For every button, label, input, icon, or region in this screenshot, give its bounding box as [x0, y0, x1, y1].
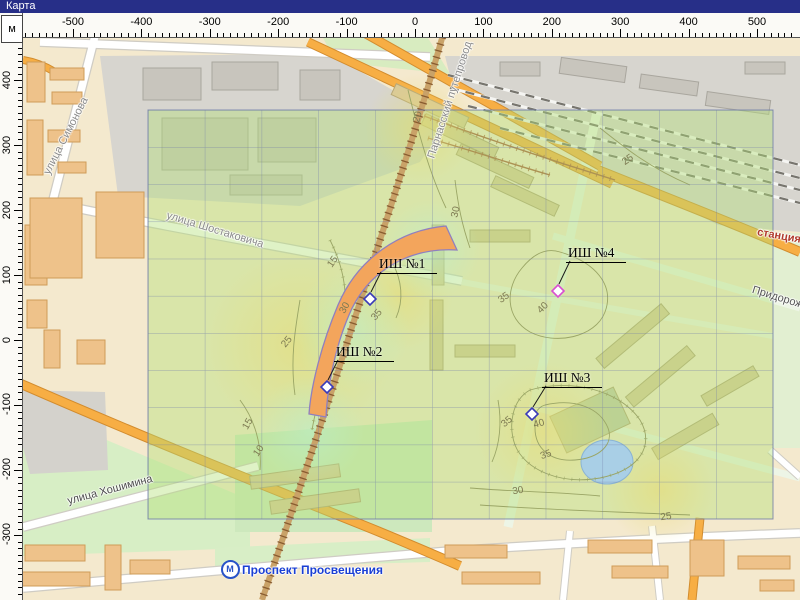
- ruler-label: 0: [1, 330, 15, 350]
- ruler-tick: [559, 33, 560, 37]
- ruler-tick: [18, 295, 22, 296]
- ruler-label: 500: [737, 16, 777, 28]
- ruler-tick: [18, 509, 22, 510]
- top-ruler: -500-400-300-200-1000100200300400500: [0, 13, 800, 38]
- ruler-tick: [429, 33, 430, 37]
- ruler-tick: [210, 29, 211, 37]
- ruler-tick: [654, 33, 655, 37]
- ruler-tick: [18, 132, 22, 133]
- survey-grid: [148, 110, 773, 519]
- ruler-tick: [18, 529, 22, 530]
- ruler-tick: [791, 33, 792, 37]
- ruler-tick: [278, 29, 279, 37]
- ruler-tick: [18, 54, 22, 55]
- ruler-tick: [394, 33, 395, 37]
- contour-value-label: 30: [512, 485, 525, 498]
- ruler-tick: [18, 178, 22, 179]
- ruler-label: 100: [463, 16, 503, 28]
- ruler-tick: [18, 561, 22, 562]
- ruler-tick: [483, 29, 484, 37]
- ruler-tick: [18, 555, 22, 556]
- ruler-tick: [223, 33, 224, 37]
- ruler-tick: [18, 197, 22, 198]
- ruler-tick: [155, 33, 156, 37]
- ruler-tick: [18, 574, 22, 575]
- ruler-tick: [14, 470, 22, 471]
- ruler-label: 300: [600, 16, 640, 28]
- ruler-tick: [347, 29, 348, 37]
- ruler-tick: [401, 33, 402, 37]
- ruler-tick: [18, 93, 22, 94]
- map-artwork: [23, 38, 800, 600]
- ruler-tick: [18, 288, 22, 289]
- ruler-tick: [299, 33, 300, 37]
- ruler-tick: [18, 139, 22, 140]
- ruler-tick: [408, 33, 409, 37]
- ruler-tick: [87, 33, 88, 37]
- metro-station-name: Проспект Просвещения: [242, 563, 383, 577]
- ruler-tick: [18, 431, 22, 432]
- ruler-tick: [572, 33, 573, 37]
- ruler-tick: [52, 33, 53, 37]
- ruler-tick: [18, 301, 22, 302]
- ruler-tick: [18, 236, 22, 237]
- ruler-tick: [18, 165, 22, 166]
- ruler-tick: [18, 457, 22, 458]
- ruler-tick: [771, 33, 772, 37]
- ruler-tick: [613, 33, 614, 37]
- ruler-tick: [764, 33, 765, 37]
- ruler-label: 200: [532, 16, 572, 28]
- ruler-tick: [107, 33, 108, 37]
- ruler-tick: [504, 33, 505, 37]
- ruler-tick: [32, 33, 33, 37]
- contour-value-label: 25: [660, 511, 673, 523]
- ruler-tick: [18, 581, 22, 582]
- ruler-tick: [436, 33, 437, 37]
- ruler-tick: [607, 33, 608, 37]
- ruler-label: 200: [1, 200, 15, 220]
- ruler-tick: [14, 405, 22, 406]
- ruler-tick: [415, 29, 416, 37]
- ruler-tick: [18, 425, 22, 426]
- ruler-tick: [18, 67, 22, 68]
- ruler-tick: [141, 29, 142, 37]
- ruler-tick: [18, 119, 22, 120]
- ruler-tick: [18, 249, 22, 250]
- ruler-tick: [353, 33, 354, 37]
- ruler-tick: [230, 33, 231, 37]
- ruler-tick: [340, 33, 341, 37]
- ruler-label: -100: [1, 395, 15, 415]
- ruler-tick: [641, 33, 642, 37]
- ruler-tick: [203, 33, 204, 37]
- ruler-tick: [285, 33, 286, 37]
- ruler-tick: [18, 269, 22, 270]
- ruler-tick: [538, 33, 539, 37]
- ruler-tick: [18, 386, 22, 387]
- ruler-tick: [18, 483, 22, 484]
- window-titlebar: Карта: [0, 0, 800, 13]
- ruler-tick: [18, 438, 22, 439]
- ruler-tick: [18, 204, 22, 205]
- ruler-tick: [18, 152, 22, 153]
- ruler-label: 0: [395, 16, 435, 28]
- ruler-tick: [709, 33, 710, 37]
- ruler-tick: [750, 33, 751, 37]
- ruler-tick: [14, 80, 22, 81]
- ruler-tick: [695, 33, 696, 37]
- ruler-tick: [18, 171, 22, 172]
- ruler-tick: [675, 33, 676, 37]
- ruler-tick: [627, 33, 628, 37]
- ruler-tick: [565, 33, 566, 37]
- ruler-tick: [18, 158, 22, 159]
- ruler-tick: [18, 308, 22, 309]
- ruler-tick: [94, 33, 95, 37]
- ruler-tick: [14, 535, 22, 536]
- ruler-tick: [449, 33, 450, 37]
- ruler-tick: [251, 33, 252, 37]
- ruler-tick: [18, 126, 22, 127]
- ruler-tick: [552, 29, 553, 37]
- ruler-tick: [18, 464, 22, 465]
- ruler-tick: [661, 33, 662, 37]
- ruler-tick: [18, 444, 22, 445]
- ruler-tick: [18, 106, 22, 107]
- ruler-tick: [14, 145, 22, 146]
- ruler-tick: [18, 548, 22, 549]
- ruler-tick: [422, 33, 423, 37]
- ruler-tick: [18, 522, 22, 523]
- ruler-tick: [46, 33, 47, 37]
- ruler-label: -200: [1, 460, 15, 480]
- ruler-tick: [244, 33, 245, 37]
- ruler-tick: [18, 217, 22, 218]
- ruler-tick: [66, 33, 67, 37]
- ruler-tick: [723, 33, 724, 37]
- left-ruler: 4003002001000-100-200-300: [0, 13, 23, 600]
- ruler-tick: [743, 33, 744, 37]
- ruler-tick: [511, 33, 512, 37]
- ruler-tick: [14, 340, 22, 341]
- ruler-tick: [182, 33, 183, 37]
- ruler-label: 400: [1, 70, 15, 90]
- ruler-tick: [18, 503, 22, 504]
- ruler-tick: [312, 33, 313, 37]
- ruler-tick: [18, 568, 22, 569]
- ruler-tick: [18, 366, 22, 367]
- ruler-tick: [668, 33, 669, 37]
- ruler-tick: [778, 33, 779, 37]
- ruler-tick: [634, 33, 635, 37]
- ruler-tick: [648, 33, 649, 37]
- ruler-tick: [176, 33, 177, 37]
- ruler-tick: [381, 33, 382, 37]
- ruler-tick: [463, 33, 464, 37]
- contour-value-label: 30: [449, 205, 462, 218]
- ruler-tick: [524, 33, 525, 37]
- ruler-label: -400: [121, 16, 161, 28]
- ruler-tick: [169, 33, 170, 37]
- ruler-tick: [518, 33, 519, 37]
- ruler-label: -300: [1, 525, 15, 545]
- ruler-tick: [367, 33, 368, 37]
- ruler-tick: [18, 262, 22, 263]
- ruler-tick: [689, 29, 690, 37]
- ruler-tick: [716, 33, 717, 37]
- ruler-tick: [18, 451, 22, 452]
- ruler-tick: [333, 33, 334, 37]
- ruler-tick: [18, 594, 22, 595]
- ruler-tick: [18, 282, 22, 283]
- ruler-tick: [730, 33, 731, 37]
- ruler-tick: [18, 542, 22, 543]
- ruler-tick: [18, 373, 22, 374]
- map-window: Карта м -500-400-300-200-100010020030040…: [0, 0, 800, 600]
- ruler-tick: [18, 490, 22, 491]
- ruler-label: -300: [190, 16, 230, 28]
- ruler-tick: [114, 33, 115, 37]
- map-canvas[interactable]: улица Симоноваулица Шостаковичаулица Хош…: [23, 38, 800, 600]
- ruler-tick: [593, 33, 594, 37]
- ruler-tick: [39, 33, 40, 37]
- ruler-tick: [265, 33, 266, 37]
- ruler-tick: [148, 33, 149, 37]
- ruler-tick: [128, 33, 129, 37]
- ruler-tick: [18, 477, 22, 478]
- ruler-tick: [18, 418, 22, 419]
- ruler-tick: [18, 347, 22, 348]
- ruler-tick: [18, 496, 22, 497]
- ruler-tick: [135, 33, 136, 37]
- ruler-tick: [100, 33, 101, 37]
- ruler-tick: [374, 33, 375, 37]
- ruler-tick: [18, 243, 22, 244]
- ruler-tick: [18, 48, 22, 49]
- ruler-tick: [189, 33, 190, 37]
- point-4-label: ИШ №4: [566, 245, 626, 263]
- ruler-tick: [18, 399, 22, 400]
- ruler-label: 300: [1, 135, 15, 155]
- ruler-tick: [586, 33, 587, 37]
- ruler-tick: [18, 321, 22, 322]
- metro-icon: М: [221, 560, 240, 579]
- ruler-tick: [292, 33, 293, 37]
- ruler-tick: [18, 353, 22, 354]
- window-title: Карта: [6, 0, 35, 12]
- ruler-tick: [360, 33, 361, 37]
- ruler-tick: [388, 33, 389, 37]
- ruler-tick: [18, 100, 22, 101]
- ruler-tick: [326, 33, 327, 37]
- ruler-label: -500: [53, 16, 93, 28]
- ruler-tick: [531, 33, 532, 37]
- ruler-tick: [497, 33, 498, 37]
- ruler-tick: [18, 587, 22, 588]
- ruler-tick: [682, 33, 683, 37]
- ruler-tick: [784, 33, 785, 37]
- ruler-tick: [18, 360, 22, 361]
- ruler-tick: [18, 327, 22, 328]
- ruler-tick: [319, 33, 320, 37]
- ruler-tick: [237, 33, 238, 37]
- point-1-label: ИШ №1: [377, 256, 437, 274]
- ruler-tick: [18, 392, 22, 393]
- ruler-tick: [18, 334, 22, 335]
- ruler-tick: [18, 61, 22, 62]
- ruler-tick: [162, 33, 163, 37]
- ruler-tick: [477, 33, 478, 37]
- ruler-tick: [757, 29, 758, 37]
- point-2-label: ИШ №2: [334, 344, 394, 362]
- ruler-tick: [620, 29, 621, 37]
- ruler-tick: [25, 33, 26, 37]
- ruler-tick: [121, 33, 122, 37]
- ruler-tick: [18, 256, 22, 257]
- ruler-tick: [73, 29, 74, 37]
- point-3-label: ИШ №3: [542, 370, 602, 388]
- ruler-tick: [271, 33, 272, 37]
- ruler-label: 100: [1, 265, 15, 285]
- ruler-tick: [18, 87, 22, 88]
- ruler-tick: [545, 33, 546, 37]
- ruler-label: -100: [327, 16, 367, 28]
- ruler-tick: [18, 379, 22, 380]
- ruler-tick: [196, 33, 197, 37]
- ruler-tick: [18, 223, 22, 224]
- ruler-label: -200: [258, 16, 298, 28]
- ruler-tick: [18, 113, 22, 114]
- ruler-tick: [18, 516, 22, 517]
- ruler-tick: [80, 33, 81, 37]
- ruler-tick: [217, 33, 218, 37]
- ruler-tick: [702, 33, 703, 37]
- ruler-tick: [18, 74, 22, 75]
- ruler-tick: [470, 33, 471, 37]
- ruler-tick: [258, 33, 259, 37]
- ruler-tick: [456, 33, 457, 37]
- ruler-tick: [600, 33, 601, 37]
- ruler-tick: [736, 33, 737, 37]
- ruler-tick: [18, 314, 22, 315]
- ruler-tick: [18, 184, 22, 185]
- ruler-tick: [306, 33, 307, 37]
- ruler-tick: [18, 230, 22, 231]
- ruler-tick: [14, 210, 22, 211]
- ruler-label: 400: [669, 16, 709, 28]
- ruler-unit-box: м: [1, 15, 23, 43]
- ruler-tick: [442, 33, 443, 37]
- ruler-tick: [579, 33, 580, 37]
- ruler-tick: [18, 412, 22, 413]
- ruler-tick: [59, 33, 60, 37]
- ruler-tick: [14, 275, 22, 276]
- ruler-tick: [18, 191, 22, 192]
- ruler-tick: [490, 33, 491, 37]
